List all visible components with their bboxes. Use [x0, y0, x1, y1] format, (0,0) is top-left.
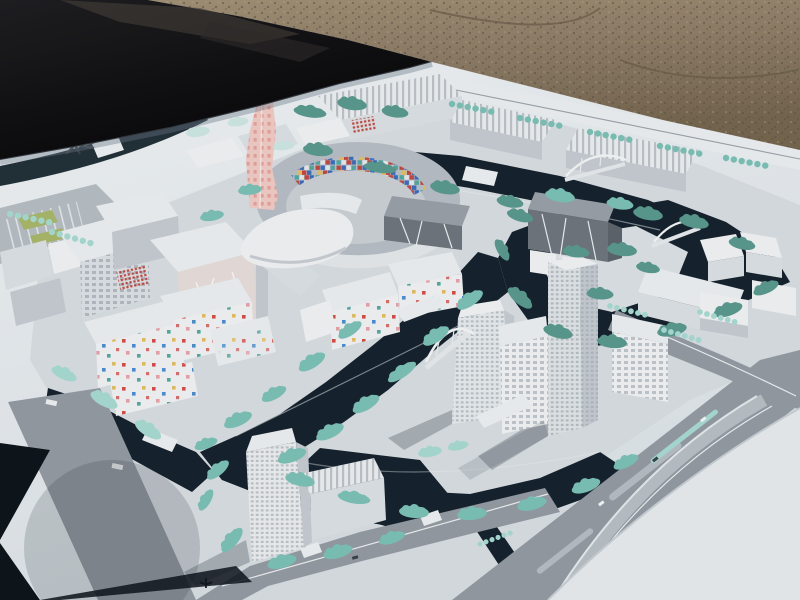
vignette	[0, 0, 800, 600]
photo-of-architecture-model	[0, 0, 800, 600]
model-scene	[0, 0, 800, 600]
